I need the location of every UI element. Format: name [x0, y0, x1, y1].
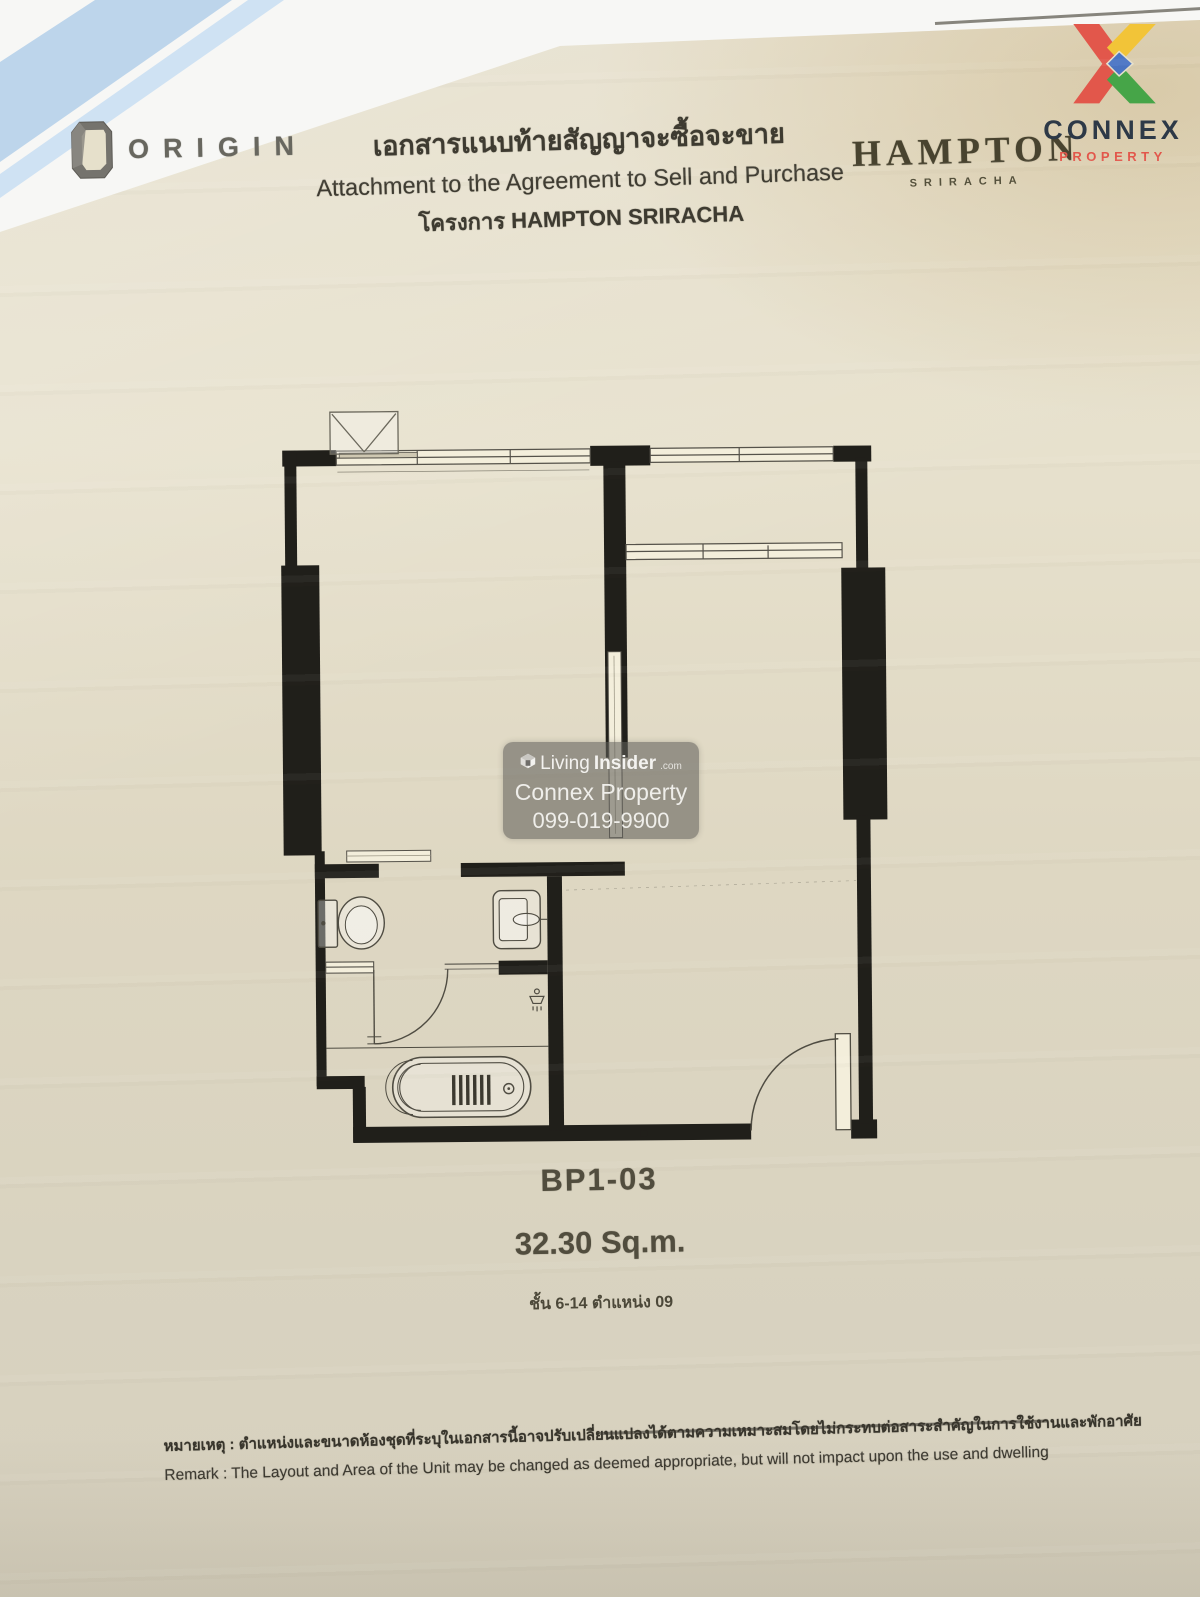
shower-icon	[530, 989, 544, 1012]
document-title-block: เอกสารแนบท้ายสัญญาจะซื้อจะขาย Attachment…	[288, 109, 871, 245]
origin-wordmark: ORIGIN	[128, 130, 309, 165]
unit-area-label: 32.30 Sq.m.	[430, 1222, 771, 1264]
unit-type-label: BP1-03	[429, 1159, 770, 1201]
bathroom-door	[367, 969, 449, 1044]
origin-logo: ORIGIN	[69, 116, 308, 181]
connex-logo: CONNEX PROPERTY	[1030, 24, 1196, 164]
bathroom-sliding-door	[347, 850, 431, 862]
connex-sub-wordmark: PROPERTY	[1030, 149, 1196, 164]
entry-door	[750, 1034, 851, 1131]
origin-hexagon-icon	[69, 120, 114, 181]
listing-watermark: LivingInsider.com Connex Property 099-01…	[503, 742, 699, 839]
connex-wordmark: CONNEX	[1030, 115, 1196, 146]
living-insider-house-icon	[520, 753, 536, 769]
window-band	[336, 447, 833, 472]
watermark-agent: Connex Property	[503, 779, 699, 806]
ac-condenser-icon	[330, 412, 398, 455]
watermark-brand-bold: Insider	[594, 753, 656, 775]
shower-partition	[326, 961, 499, 974]
document-photo: ORIGIN เอกสารแนบท้ายสัญญาจะซื้อจะขาย Att…	[0, 0, 1200, 1597]
toilet-fixture	[318, 897, 384, 950]
unit-info-block: BP1-03 32.30 Sq.m. ชั้น 6-14 ตำแหน่ง 09	[429, 1159, 772, 1319]
watermark-brand-line: LivingInsider.com	[503, 753, 699, 775]
basin-fixture	[493, 890, 548, 948]
balcony-sliding-door	[626, 543, 842, 560]
construction-line	[566, 881, 856, 891]
watermark-brand-tld: .com	[660, 761, 682, 772]
watermark-brand-prefix: Living	[540, 753, 590, 775]
connex-x-icon	[1047, 24, 1179, 108]
watermark-phone: 099-019-9900	[503, 808, 699, 834]
